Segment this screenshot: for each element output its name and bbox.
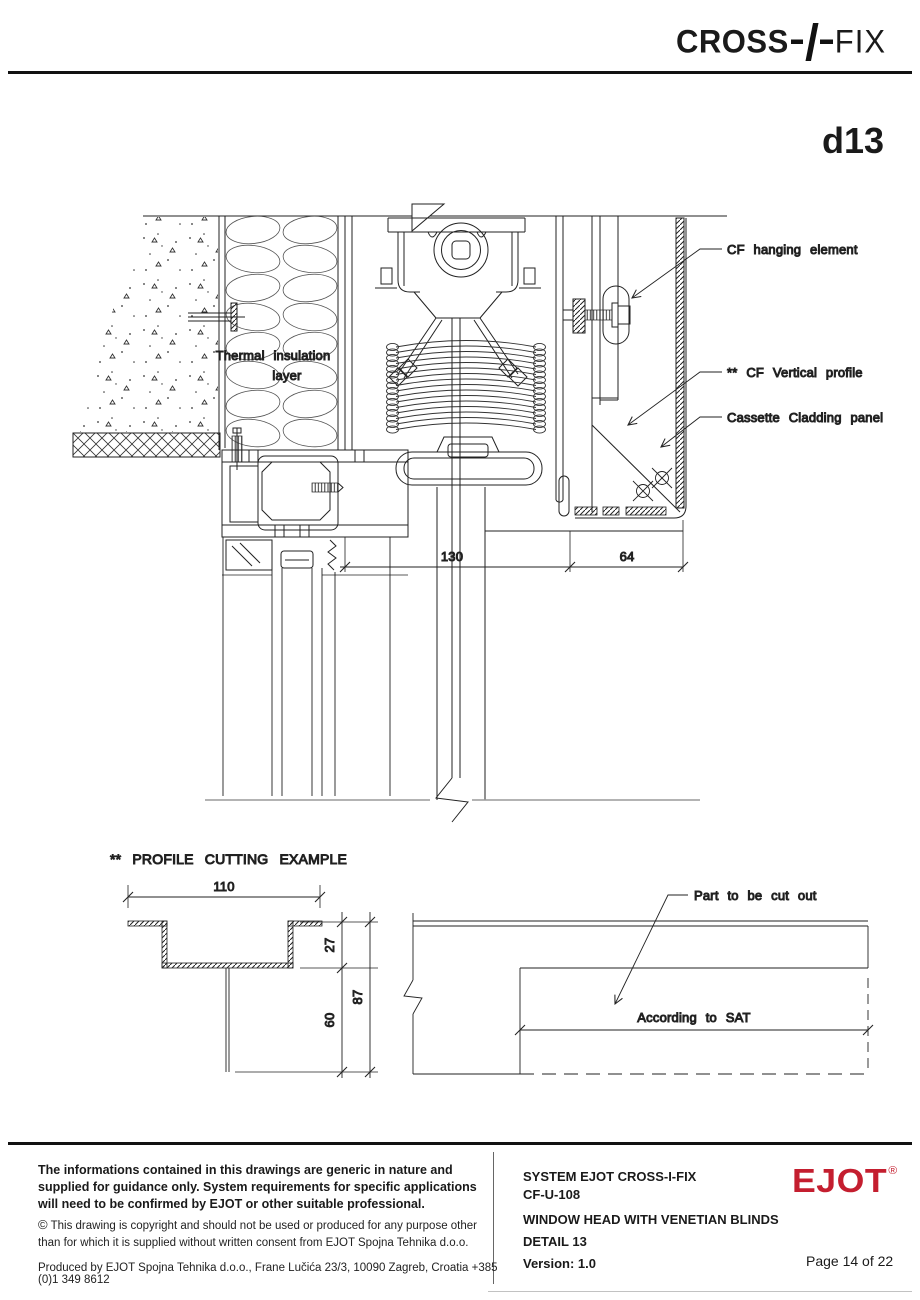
- window-frame-profile: [222, 450, 408, 537]
- hat-profile: [128, 921, 322, 1072]
- blind-bottom-rail: [396, 437, 542, 485]
- glazing-unit: [223, 537, 390, 796]
- footer-system-block: SYSTEM EJOT CROSS-I-FIX CF-U-108: [523, 1168, 696, 1204]
- fastener-target-icon: [652, 468, 672, 488]
- dimension-130-64: 130 64: [340, 520, 688, 572]
- footer-bottom-line: [488, 1291, 912, 1292]
- concrete-wall: [73, 216, 220, 457]
- insulation-label-line2: layer: [272, 368, 302, 383]
- footer-system-name: SYSTEM EJOT CROSS-I-FIX: [523, 1168, 696, 1186]
- profile-cutting-example: ** PROFILE CUTTING EXAMPLE 110: [110, 851, 378, 1078]
- dim-64: 64: [620, 549, 635, 564]
- blind-shaft: [436, 318, 485, 822]
- label-part-cut-out: Part to be cut out: [694, 888, 817, 903]
- cutout-diagram: According to SAT Part to be cut out: [404, 888, 873, 1074]
- footer-disclaimer: The informations contained in this drawi…: [38, 1162, 490, 1213]
- blind-mechanism: [375, 204, 541, 386]
- page-number: Page 14 of 22: [806, 1253, 893, 1269]
- cf-hanging-element: [573, 286, 630, 344]
- registered-mark-icon: ®: [888, 1165, 897, 1177]
- blind-housing: [345, 216, 683, 531]
- label-hanging-element: CF hanging element: [727, 242, 858, 257]
- cf-vertical-profile: [563, 216, 680, 512]
- dim-60: 60: [322, 1013, 337, 1028]
- window-sash: [222, 540, 408, 575]
- footer-copyright: ©This drawing is copyright and should no…: [38, 1216, 494, 1252]
- ejot-logo-text: EJOT: [792, 1162, 887, 1199]
- footer-version: Version: 1.0: [523, 1256, 596, 1271]
- footer-detail-number: DETAIL 13: [523, 1234, 587, 1249]
- ejot-logo: EJOT®: [792, 1162, 898, 1200]
- label-according-sat: According to SAT: [637, 1010, 750, 1025]
- footer-produced-by: Produced by EJOT Spojna Tehnika d.o.o., …: [38, 1262, 498, 1286]
- label-vertical-profile: ** CF Vertical profile: [727, 365, 863, 380]
- footer-rule: [8, 1142, 912, 1145]
- insulation-label-line1: Thermal insulation: [216, 348, 331, 363]
- copyright-icon: ©: [38, 1217, 48, 1232]
- venetian-blind-slat-stack: [387, 341, 546, 434]
- callout-leaders: [628, 249, 722, 447]
- footer-drawing-title: WINDOW HEAD WITH VENETIAN BLINDS: [523, 1212, 779, 1227]
- footer-copyright-text: This drawing is copyright and should not…: [38, 1220, 477, 1249]
- label-cladding-panel: Cassette Cladding panel: [727, 410, 883, 425]
- dim-87: 87: [350, 990, 365, 1005]
- dim-27: 27: [322, 938, 337, 953]
- main-detail-drawing: Thermal insulation layer: [0, 0, 920, 1140]
- footer-product-code: CF-U-108: [523, 1186, 696, 1204]
- drawing-page: CROSS FIX d13: [0, 0, 920, 1300]
- dim-110: 110: [213, 879, 234, 894]
- dim-130: 130: [441, 549, 463, 564]
- fastener-target-icon: [633, 481, 653, 501]
- cutting-example-title: ** PROFILE CUTTING EXAMPLE: [110, 851, 347, 867]
